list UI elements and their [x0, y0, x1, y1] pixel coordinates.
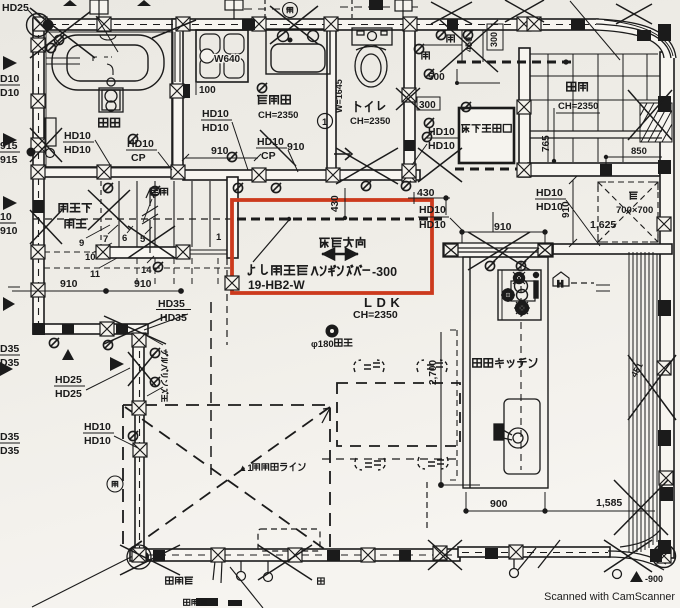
- svg-text:CH=2350: CH=2350: [350, 116, 390, 127]
- svg-text:D35: D35: [0, 343, 19, 355]
- svg-text:HD25: HD25: [55, 374, 82, 386]
- svg-text:915: 915: [0, 154, 18, 166]
- svg-text:1: 1: [322, 117, 328, 128]
- svg-text:10: 10: [85, 252, 96, 263]
- svg-text:HD25: HD25: [55, 388, 82, 400]
- svg-text:1: 1: [216, 232, 222, 243]
- svg-text:HD10: HD10: [428, 126, 455, 138]
- svg-text:HD10: HD10: [419, 204, 446, 216]
- svg-text:HD10: HD10: [127, 138, 154, 150]
- svg-text:HD35: HD35: [158, 298, 185, 310]
- svg-text:300: 300: [419, 100, 436, 111]
- svg-text:D10: D10: [0, 87, 19, 99]
- svg-text:910: 910: [134, 278, 152, 290]
- svg-text:HD10: HD10: [428, 140, 455, 152]
- svg-text:CP: CP: [131, 152, 146, 164]
- svg-text:HD10: HD10: [257, 136, 284, 148]
- svg-text:430: 430: [330, 195, 341, 212]
- svg-text:-300: -300: [372, 265, 397, 279]
- svg-text:HD10: HD10: [536, 187, 563, 199]
- svg-text:Scanned with CamScanner: Scanned with CamScanner: [544, 591, 675, 603]
- svg-text:D35: D35: [0, 431, 19, 443]
- svg-text:CH=2350: CH=2350: [258, 110, 298, 121]
- svg-text:14: 14: [141, 265, 152, 276]
- svg-text:CP: CP: [261, 150, 276, 162]
- svg-text:HD10: HD10: [84, 421, 111, 433]
- svg-text:765: 765: [541, 135, 552, 152]
- svg-text:850: 850: [631, 146, 647, 157]
- svg-text:910: 910: [287, 141, 305, 153]
- svg-text:-900: -900: [645, 574, 663, 584]
- svg-text:W640: W640: [214, 54, 241, 65]
- svg-text:HD10: HD10: [536, 201, 563, 213]
- svg-text:100: 100: [199, 85, 216, 96]
- svg-text:450: 450: [464, 37, 474, 52]
- svg-text:19-HB2-W: 19-HB2-W: [248, 278, 305, 292]
- svg-text:D10: D10: [0, 73, 19, 85]
- svg-text:430: 430: [417, 187, 435, 199]
- svg-text:2,700: 2,700: [428, 360, 439, 385]
- svg-text:300: 300: [489, 32, 499, 47]
- svg-text:HD10: HD10: [419, 219, 446, 231]
- svg-text:910: 910: [211, 145, 229, 157]
- svg-text:D35: D35: [0, 445, 19, 457]
- svg-text:HD10: HD10: [202, 108, 229, 120]
- svg-text:910: 910: [0, 225, 18, 237]
- svg-text:H: H: [557, 279, 564, 289]
- svg-text:φ180: φ180: [311, 339, 334, 350]
- svg-text:HD10: HD10: [64, 130, 91, 142]
- svg-text:HD10: HD10: [202, 122, 229, 134]
- svg-text:HD10: HD10: [84, 435, 111, 447]
- svg-text:900: 900: [490, 498, 508, 510]
- svg-text:910: 910: [60, 278, 78, 290]
- svg-text:9: 9: [79, 238, 84, 249]
- svg-text:CH=2350: CH=2350: [558, 101, 598, 112]
- svg-text:▲1: ▲1: [238, 463, 253, 474]
- svg-text:6: 6: [122, 233, 127, 244]
- svg-text:1,625: 1,625: [590, 219, 616, 231]
- svg-text:11: 11: [90, 269, 101, 280]
- svg-text:500: 500: [428, 72, 445, 83]
- svg-text:700×700: 700×700: [616, 205, 653, 216]
- svg-text:7: 7: [103, 234, 108, 245]
- svg-text:LDK: LDK: [364, 295, 404, 310]
- svg-text:HD10: HD10: [64, 144, 91, 156]
- svg-text:10: 10: [0, 211, 12, 223]
- svg-text:HD25: HD25: [2, 2, 29, 14]
- svg-text:CH=2350: CH=2350: [353, 309, 398, 321]
- svg-text:1,585: 1,585: [596, 497, 622, 509]
- svg-text:W=1645: W=1645: [334, 79, 344, 113]
- svg-text:910: 910: [494, 221, 512, 233]
